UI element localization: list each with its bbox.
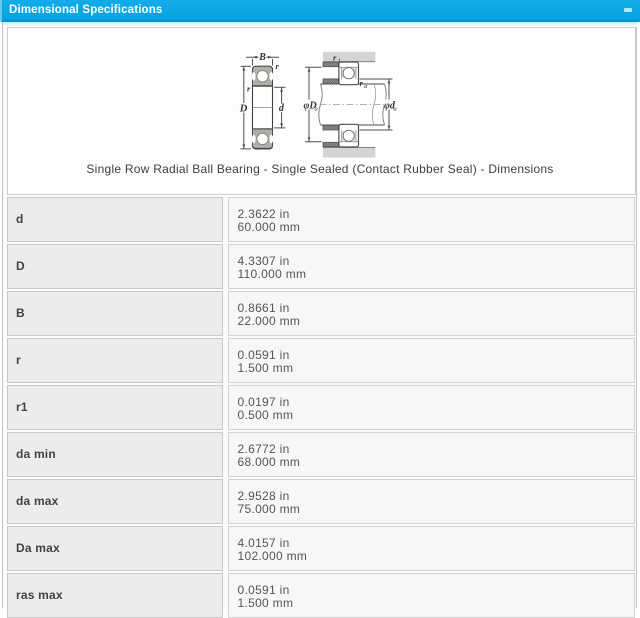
svg-text:a: a	[394, 106, 397, 113]
svg-text:a: a	[364, 83, 367, 90]
svg-text:a: a	[315, 106, 318, 113]
svg-text:r: r	[276, 61, 280, 71]
svg-text:D: D	[239, 104, 248, 115]
svg-text:r: r	[247, 84, 251, 94]
svg-text:B: B	[258, 52, 266, 63]
